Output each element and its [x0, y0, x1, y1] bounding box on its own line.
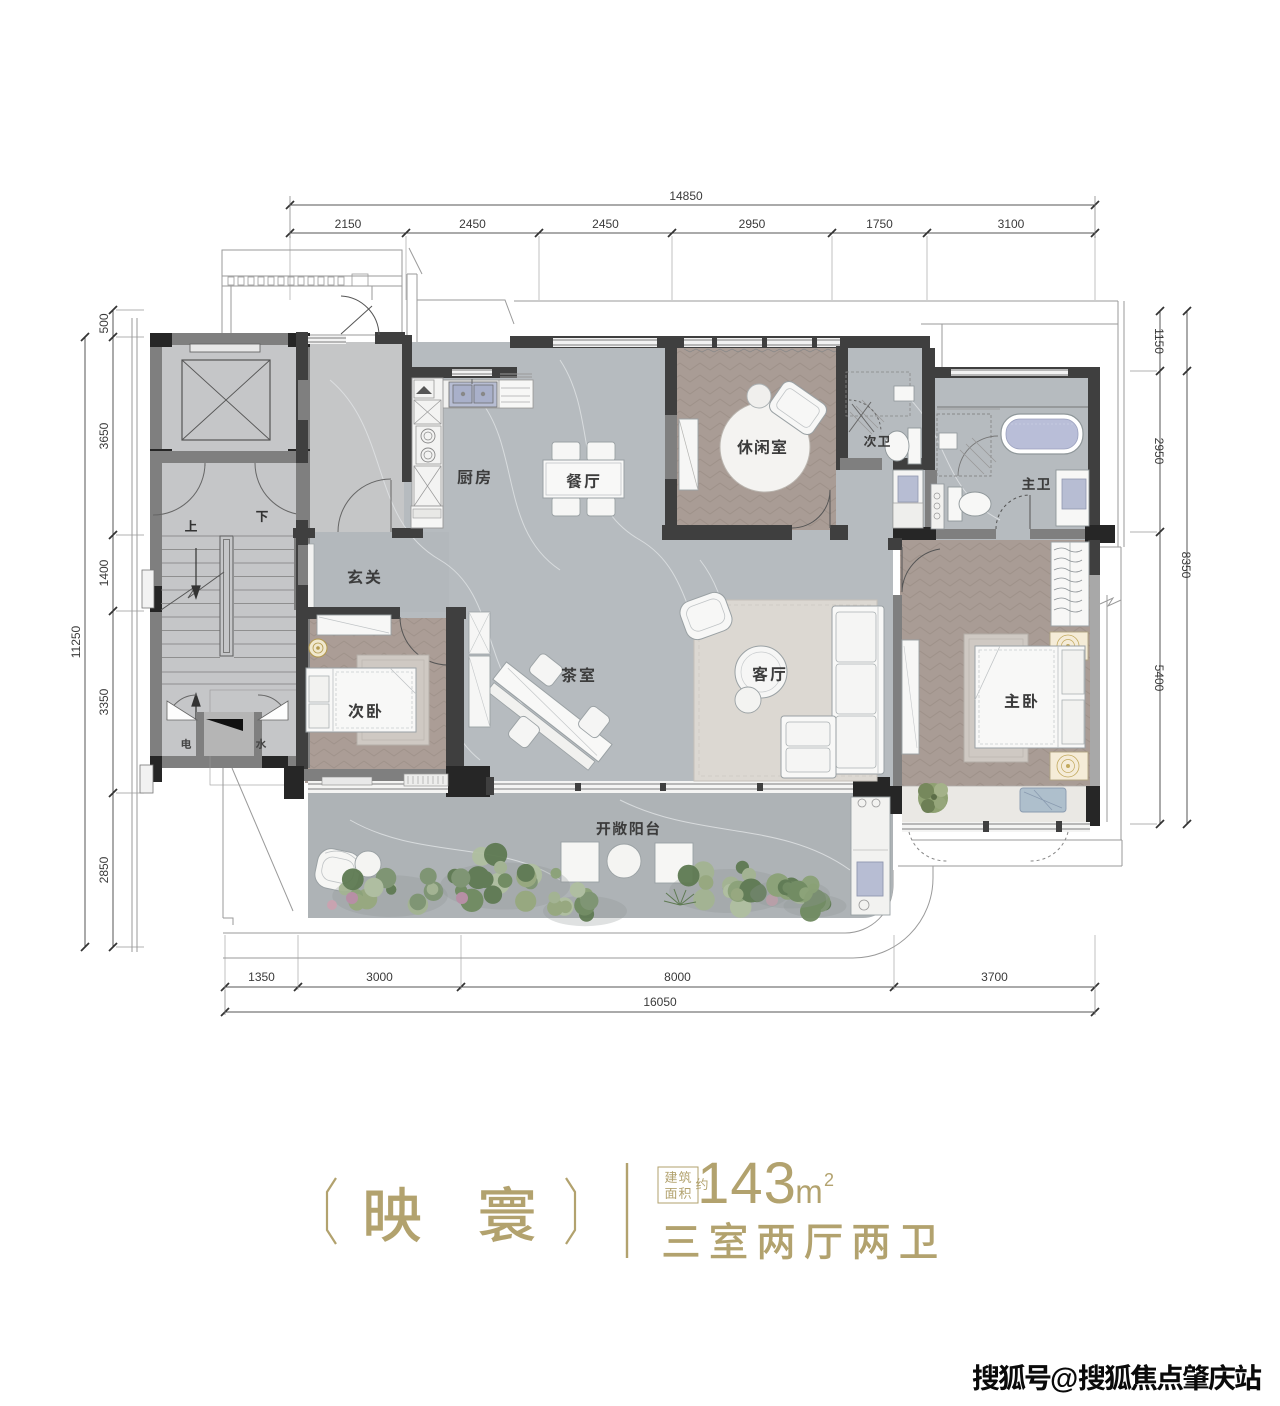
svg-text:5400: 5400: [1152, 665, 1166, 692]
svg-text:16050: 16050: [643, 995, 677, 1009]
svg-text:2150: 2150: [335, 217, 362, 231]
svg-text:2950: 2950: [739, 217, 766, 231]
svg-text:2: 2: [824, 1170, 834, 1190]
svg-text:3000: 3000: [366, 970, 393, 984]
svg-text:2950: 2950: [1152, 438, 1166, 465]
svg-text:2450: 2450: [459, 217, 486, 231]
svg-text:m: m: [795, 1173, 823, 1210]
svg-text:11250: 11250: [69, 625, 83, 658]
svg-text:8000: 8000: [664, 970, 691, 984]
svg-text:1350: 1350: [248, 970, 275, 984]
svg-text:3650: 3650: [97, 422, 111, 449]
svg-text:2450: 2450: [592, 217, 619, 231]
svg-text:1400: 1400: [97, 559, 111, 586]
svg-text:2850: 2850: [97, 856, 111, 883]
svg-text:1150: 1150: [1152, 328, 1166, 354]
svg-text:8350: 8350: [1179, 552, 1193, 579]
svg-text:1750: 1750: [866, 217, 893, 231]
svg-text:14850: 14850: [669, 189, 703, 203]
svg-text:3700: 3700: [981, 970, 1008, 984]
svg-text:143: 143: [697, 1151, 797, 1216]
svg-text:3350: 3350: [97, 688, 111, 715]
svg-text:500: 500: [97, 313, 111, 333]
svg-text:3100: 3100: [998, 217, 1025, 231]
svg-text:@: @: [1050, 1363, 1078, 1395]
